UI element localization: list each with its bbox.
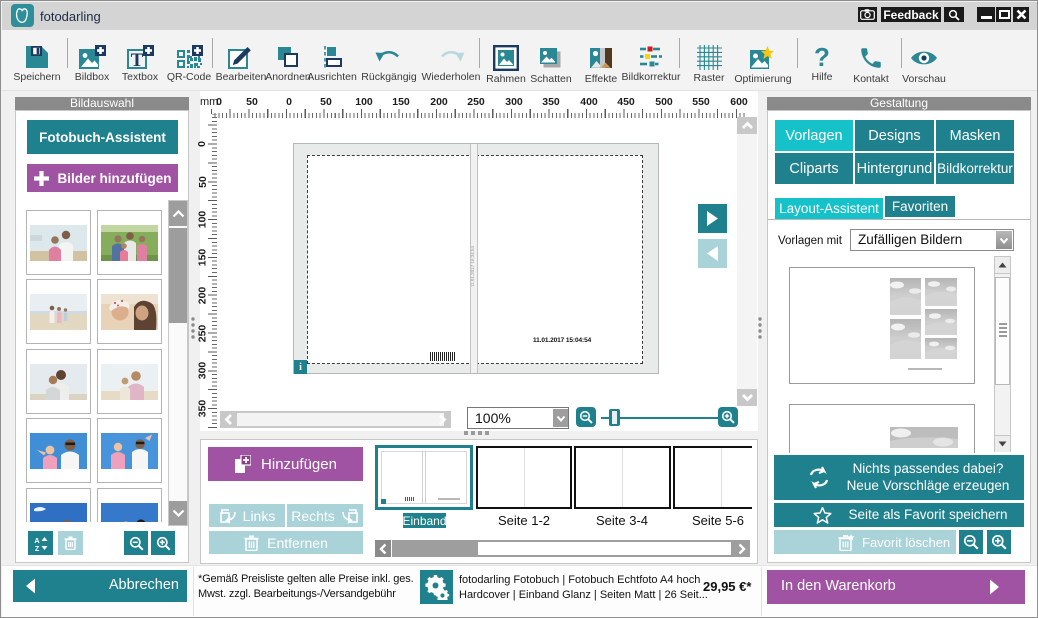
svg-text:T: T xyxy=(130,50,143,69)
svg-text:Z: Z xyxy=(35,544,40,551)
